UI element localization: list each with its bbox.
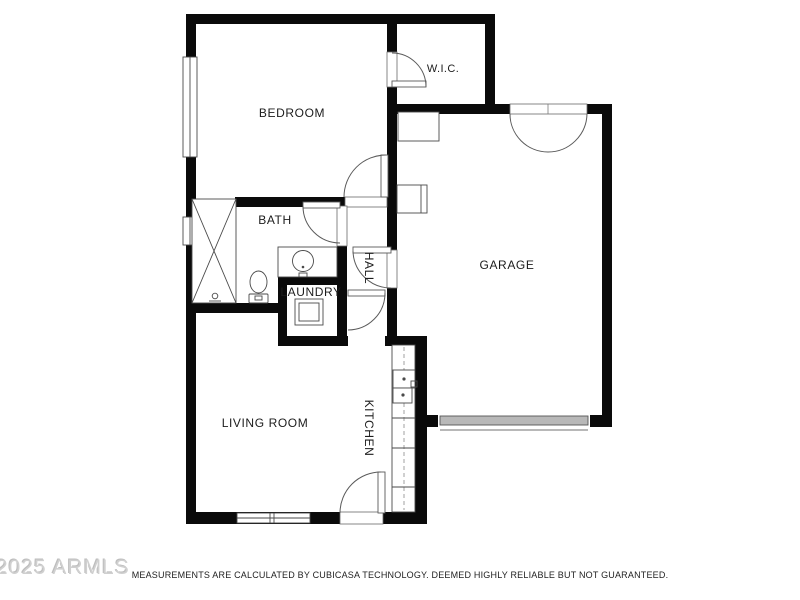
hall-living-door-leaf xyxy=(348,290,385,296)
bath-door-leaf xyxy=(303,202,340,208)
garage-double-door-arc-right xyxy=(548,114,587,152)
sink-knob-dot xyxy=(401,393,404,396)
bedroom-doorway-opening xyxy=(345,197,387,207)
entry-door-opening xyxy=(340,512,383,524)
wall-segment xyxy=(186,14,397,24)
floorplan-drawing: BEDROOM W.I.C. GARAGE BATH HALL LAUNDRY … xyxy=(0,0,800,600)
wall-segment xyxy=(602,104,612,427)
bedroom-door-leaf xyxy=(381,155,388,197)
toilet-tank xyxy=(249,294,268,303)
garage-storage-unit xyxy=(398,112,439,141)
sink-drain-dot xyxy=(302,266,305,269)
garage-double-door-arc-left xyxy=(510,114,548,152)
room-label-laundry: LAUNDRY xyxy=(280,285,341,299)
room-label-bedroom: BEDROOM xyxy=(259,106,325,120)
bath-door-opening xyxy=(337,206,347,246)
room-label-living-room: LIVING ROOM xyxy=(222,416,309,430)
entry-door-leaf xyxy=(378,472,385,513)
room-labels: BEDROOM W.I.C. GARAGE BATH HALL LAUNDRY … xyxy=(222,63,535,456)
garage-storage-unit xyxy=(397,185,427,213)
toilet-fixture xyxy=(250,271,267,293)
wic-door-leaf xyxy=(392,81,426,87)
bedroom-door-arc xyxy=(344,155,386,197)
garage-door-opening-hall xyxy=(387,250,397,288)
wall-segment xyxy=(278,336,348,346)
wall-segment xyxy=(278,277,347,285)
wall-segment xyxy=(387,14,495,24)
disclaimer-text: MEASUREMENTS ARE CALCULATED BY CUBICASA … xyxy=(0,570,800,580)
sink-knob-dot xyxy=(402,377,405,380)
bath-door-arc xyxy=(303,206,340,243)
wall-segment xyxy=(186,303,278,313)
garage-rear-double-door-opening xyxy=(510,104,587,114)
room-label-garage: GARAGE xyxy=(480,258,535,272)
wall-segment xyxy=(485,14,495,114)
room-label-kitchen: KITCHEN xyxy=(362,400,376,457)
floorplan-canvas: BEDROOM W.I.C. GARAGE BATH HALL LAUNDRY … xyxy=(0,0,800,600)
entry-door-arc xyxy=(340,472,381,513)
room-label-bath: BATH xyxy=(258,213,292,227)
room-label-hall: HALL xyxy=(362,252,376,284)
wall-segment xyxy=(415,336,427,524)
room-label-wic: W.I.C. xyxy=(427,63,459,75)
hall-living-door-arc xyxy=(348,293,385,330)
garage-vehicle-door xyxy=(440,416,588,425)
